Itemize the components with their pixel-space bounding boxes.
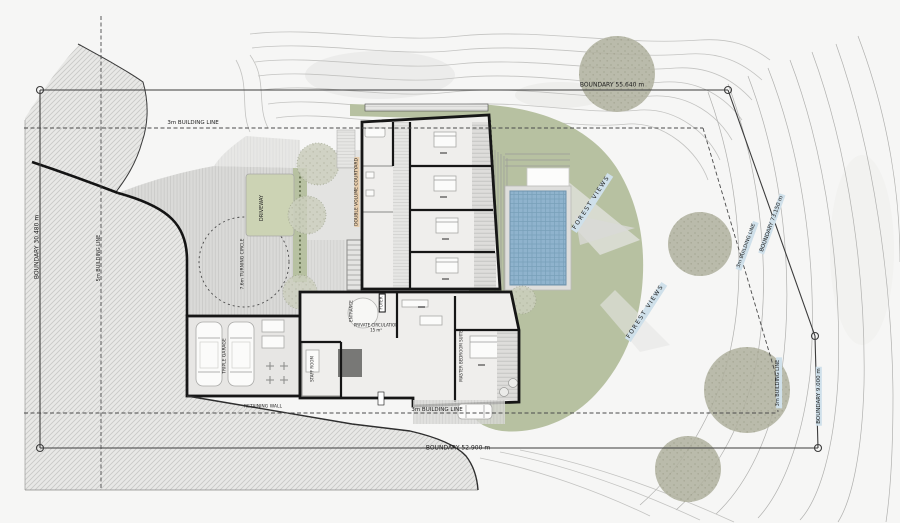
building-line-right-lower-label: 3m BUILDING LINE [776, 358, 782, 409]
courtyard-tree [297, 143, 339, 185]
building-line-left-label: 5m BUILDING LINE [97, 235, 103, 282]
courtyard-label: DOUBLE VOLUME COURTYARD [354, 157, 359, 227]
bedroom-deck [472, 166, 493, 210]
private-circulation-label: PRIVATE CIRCULATION 15 m² [354, 323, 398, 332]
bathtub [365, 128, 385, 137]
driveway-label: DRIVEWAY [260, 195, 266, 221]
car [196, 322, 222, 386]
car [228, 322, 254, 386]
entry-steps [337, 130, 355, 168]
garage-label: TRIPLE GARAGE [222, 338, 227, 374]
bed [436, 218, 458, 233]
bed [434, 176, 456, 191]
pergola-band [365, 104, 488, 111]
private-circulation-area: 15 m² [354, 328, 398, 333]
garage-wing [187, 316, 300, 396]
bedroom-deck [472, 122, 491, 166]
courtyard-tree [288, 196, 326, 234]
bedroom-deck [474, 210, 495, 252]
master-suite-label: MASTER BEDROOM SUITE [460, 330, 465, 382]
kitchen-island [402, 300, 428, 307]
boundary-bottom-label: BOUNDARY 52.900 m [426, 446, 490, 453]
building-line-bottom-label: 3m BUILDING LINE [411, 407, 462, 413]
bed [434, 132, 456, 147]
dining-table [420, 316, 442, 325]
lower-wing [300, 292, 519, 424]
turning-circle-label: 7.6m TURNING CIRCLE [240, 239, 245, 290]
staff-room-label: STAFF ROOM [311, 356, 316, 382]
tree [579, 36, 655, 112]
tree [655, 436, 721, 502]
foyer-label: FOYER [379, 294, 386, 313]
boundary-top-label: BOUNDARY 55.640 m [580, 83, 644, 90]
patio-chair [500, 388, 509, 397]
car [458, 404, 492, 419]
corridor [393, 122, 410, 289]
retaining-wall-label: RETAINING WALL [244, 404, 282, 409]
site-plan-sheet: BOUNDARY 55.640 m 3m BUILDING LINE BOUND… [0, 0, 900, 523]
patio-chair [509, 379, 518, 388]
label-box [378, 392, 384, 405]
master-bed [470, 336, 500, 358]
bed [436, 258, 458, 273]
boundary-right-lower-label: BOUNDARY 9.000 m [816, 366, 822, 425]
swimming-pool [510, 191, 566, 285]
boundary-left-label: BOUNDARY 30.480 m [35, 215, 42, 279]
entrance-label: ENTRANCE [350, 300, 355, 322]
building-line-top-label: 3m BUILDING LINE [167, 120, 218, 126]
bedroom-deck [474, 252, 496, 289]
tree [668, 212, 732, 276]
